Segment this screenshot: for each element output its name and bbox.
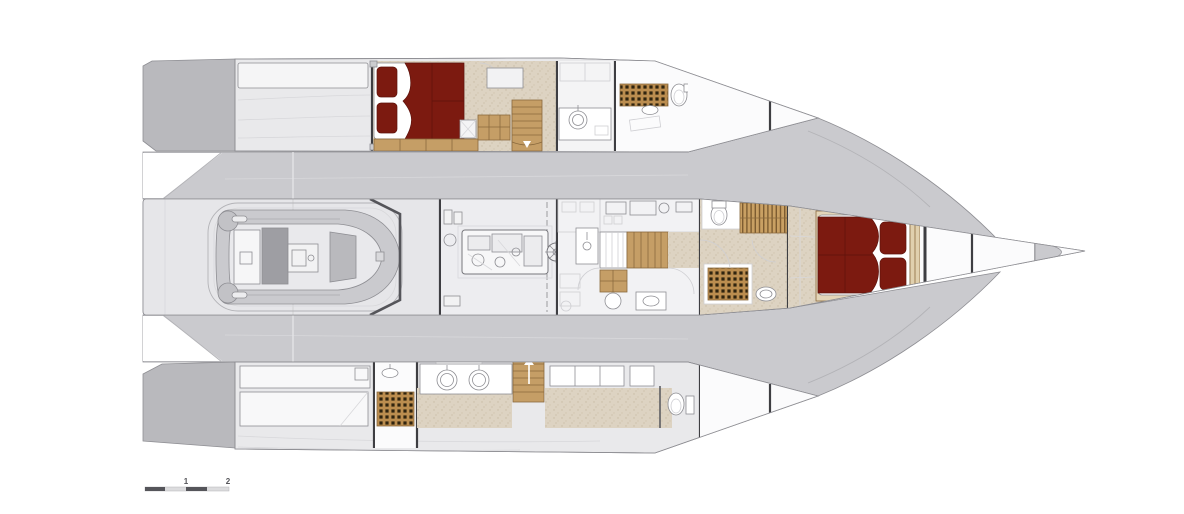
floor-plan-canvas: 1 2 [0, 0, 1184, 514]
starboard-hull [143, 355, 818, 453]
port-washbasin [569, 111, 587, 129]
master-bed-pillow [880, 258, 906, 290]
engine [462, 230, 548, 274]
port-shower-grate [620, 84, 668, 106]
starboard-washbasin [437, 370, 457, 390]
starboard-staircase [513, 356, 544, 402]
starboard-washbasin [469, 370, 489, 390]
engine-room [441, 199, 567, 315]
tender-boat [216, 210, 400, 304]
master-bed-pillow [880, 222, 906, 254]
scale-label-1: 1 [184, 477, 189, 486]
scale-label-2: 2 [226, 477, 231, 486]
port-bed-pillow [377, 67, 397, 97]
tender-fwd-seat [330, 232, 356, 282]
scale-bar: 1 2 [145, 477, 231, 491]
port-stern-cap [143, 59, 235, 151]
port-staircase [512, 100, 542, 151]
main-shower-grate [708, 268, 748, 300]
starboard-stern-cap [143, 362, 235, 448]
port-small-sink [642, 106, 658, 115]
companionway-stairs [600, 232, 700, 268]
starboard-toilet [668, 393, 684, 415]
main-washbasin [756, 287, 776, 301]
starboard-shower-room [375, 362, 417, 448]
tender-seat [262, 228, 288, 284]
tender-garage [143, 199, 440, 315]
tender-aft-bench [234, 230, 260, 284]
port-bed-pillow [377, 103, 397, 133]
port-drawer-chest [478, 115, 510, 140]
wood-steps [627, 232, 668, 268]
port-vanity [558, 61, 614, 151]
port-bathroom [616, 61, 690, 151]
starboard-vanity [417, 355, 512, 428]
guest-bathroom [700, 199, 788, 315]
trimaran-floor-plan: 1 2 [0, 0, 1184, 514]
tender-console [288, 244, 318, 272]
starboard-shower-grate [377, 392, 414, 426]
port-hull [143, 58, 818, 152]
starboard-small-sink [382, 369, 398, 378]
